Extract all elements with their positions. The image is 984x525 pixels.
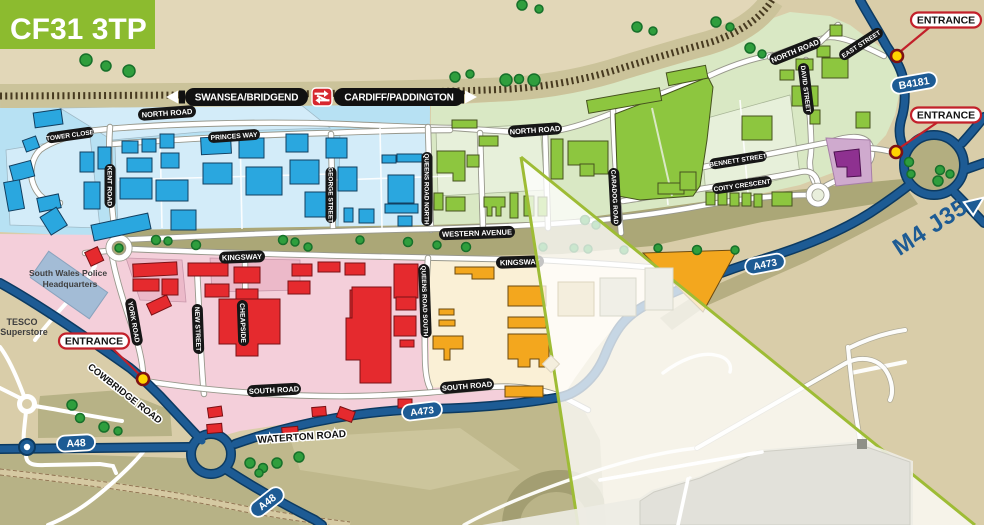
svg-text:KINGSWAY: KINGSWAY (500, 257, 540, 267)
svg-text:CARDIFF/PADDINGTON: CARDIFF/PADDINGTON (344, 93, 453, 104)
svg-text:TESCO: TESCO (6, 317, 37, 327)
svg-text:QUEENS ROAD NORTH: QUEENS ROAD NORTH (423, 153, 430, 224)
svg-text:CF31 3TP: CF31 3TP (10, 13, 147, 46)
svg-text:ENTRANCE: ENTRANCE (917, 15, 975, 27)
svg-text:Superstore: Superstore (0, 327, 48, 337)
svg-text:ENTRANCE: ENTRANCE (65, 336, 123, 348)
svg-text:ENTRANCE: ENTRANCE (917, 110, 975, 122)
svg-text:South Wales Police: South Wales Police (29, 268, 107, 278)
svg-text:A48: A48 (66, 437, 86, 450)
svg-text:KINGSWAY: KINGSWAY (222, 252, 262, 262)
svg-text:SWANSEA/BRIDGEND: SWANSEA/BRIDGEND (195, 93, 298, 104)
svg-text:KENT ROAD: KENT ROAD (106, 166, 113, 206)
svg-text:GEORGE STREET: GEORGE STREET (327, 167, 334, 223)
svg-text:CHEAPSIDE: CHEAPSIDE (238, 303, 246, 343)
svg-text:Headquarters: Headquarters (43, 279, 98, 289)
